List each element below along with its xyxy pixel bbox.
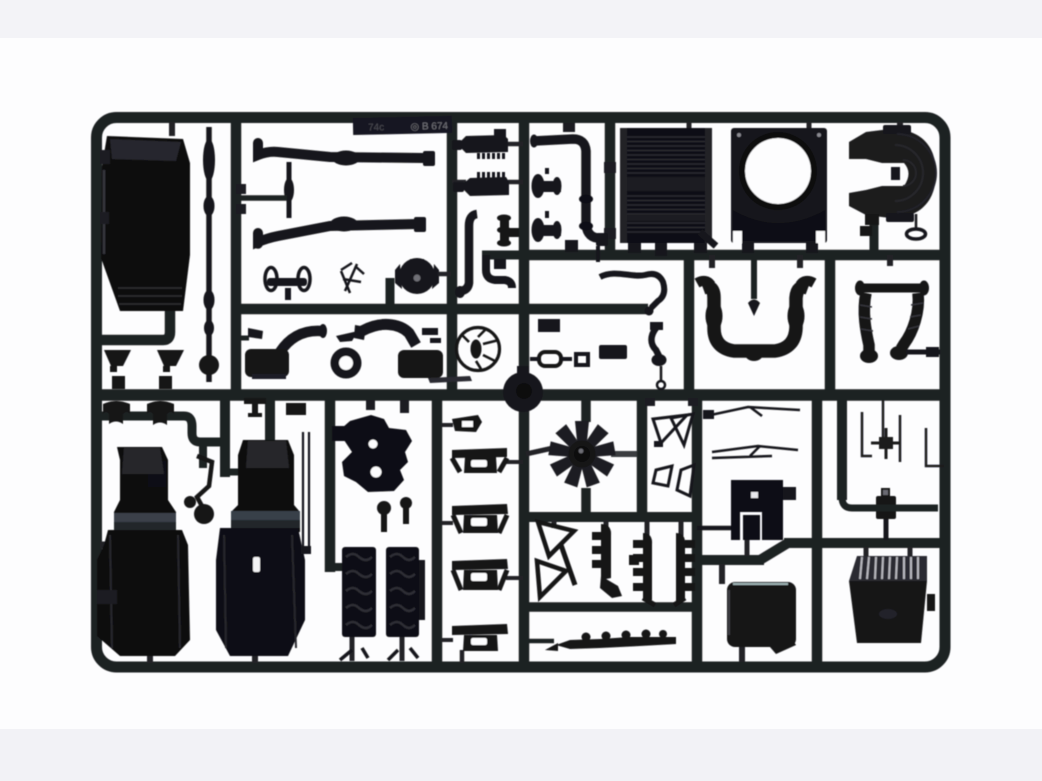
svg-text:74c: 74c bbox=[368, 122, 384, 133]
svg-text:◎ B 674: ◎ B 674 bbox=[410, 121, 448, 133]
